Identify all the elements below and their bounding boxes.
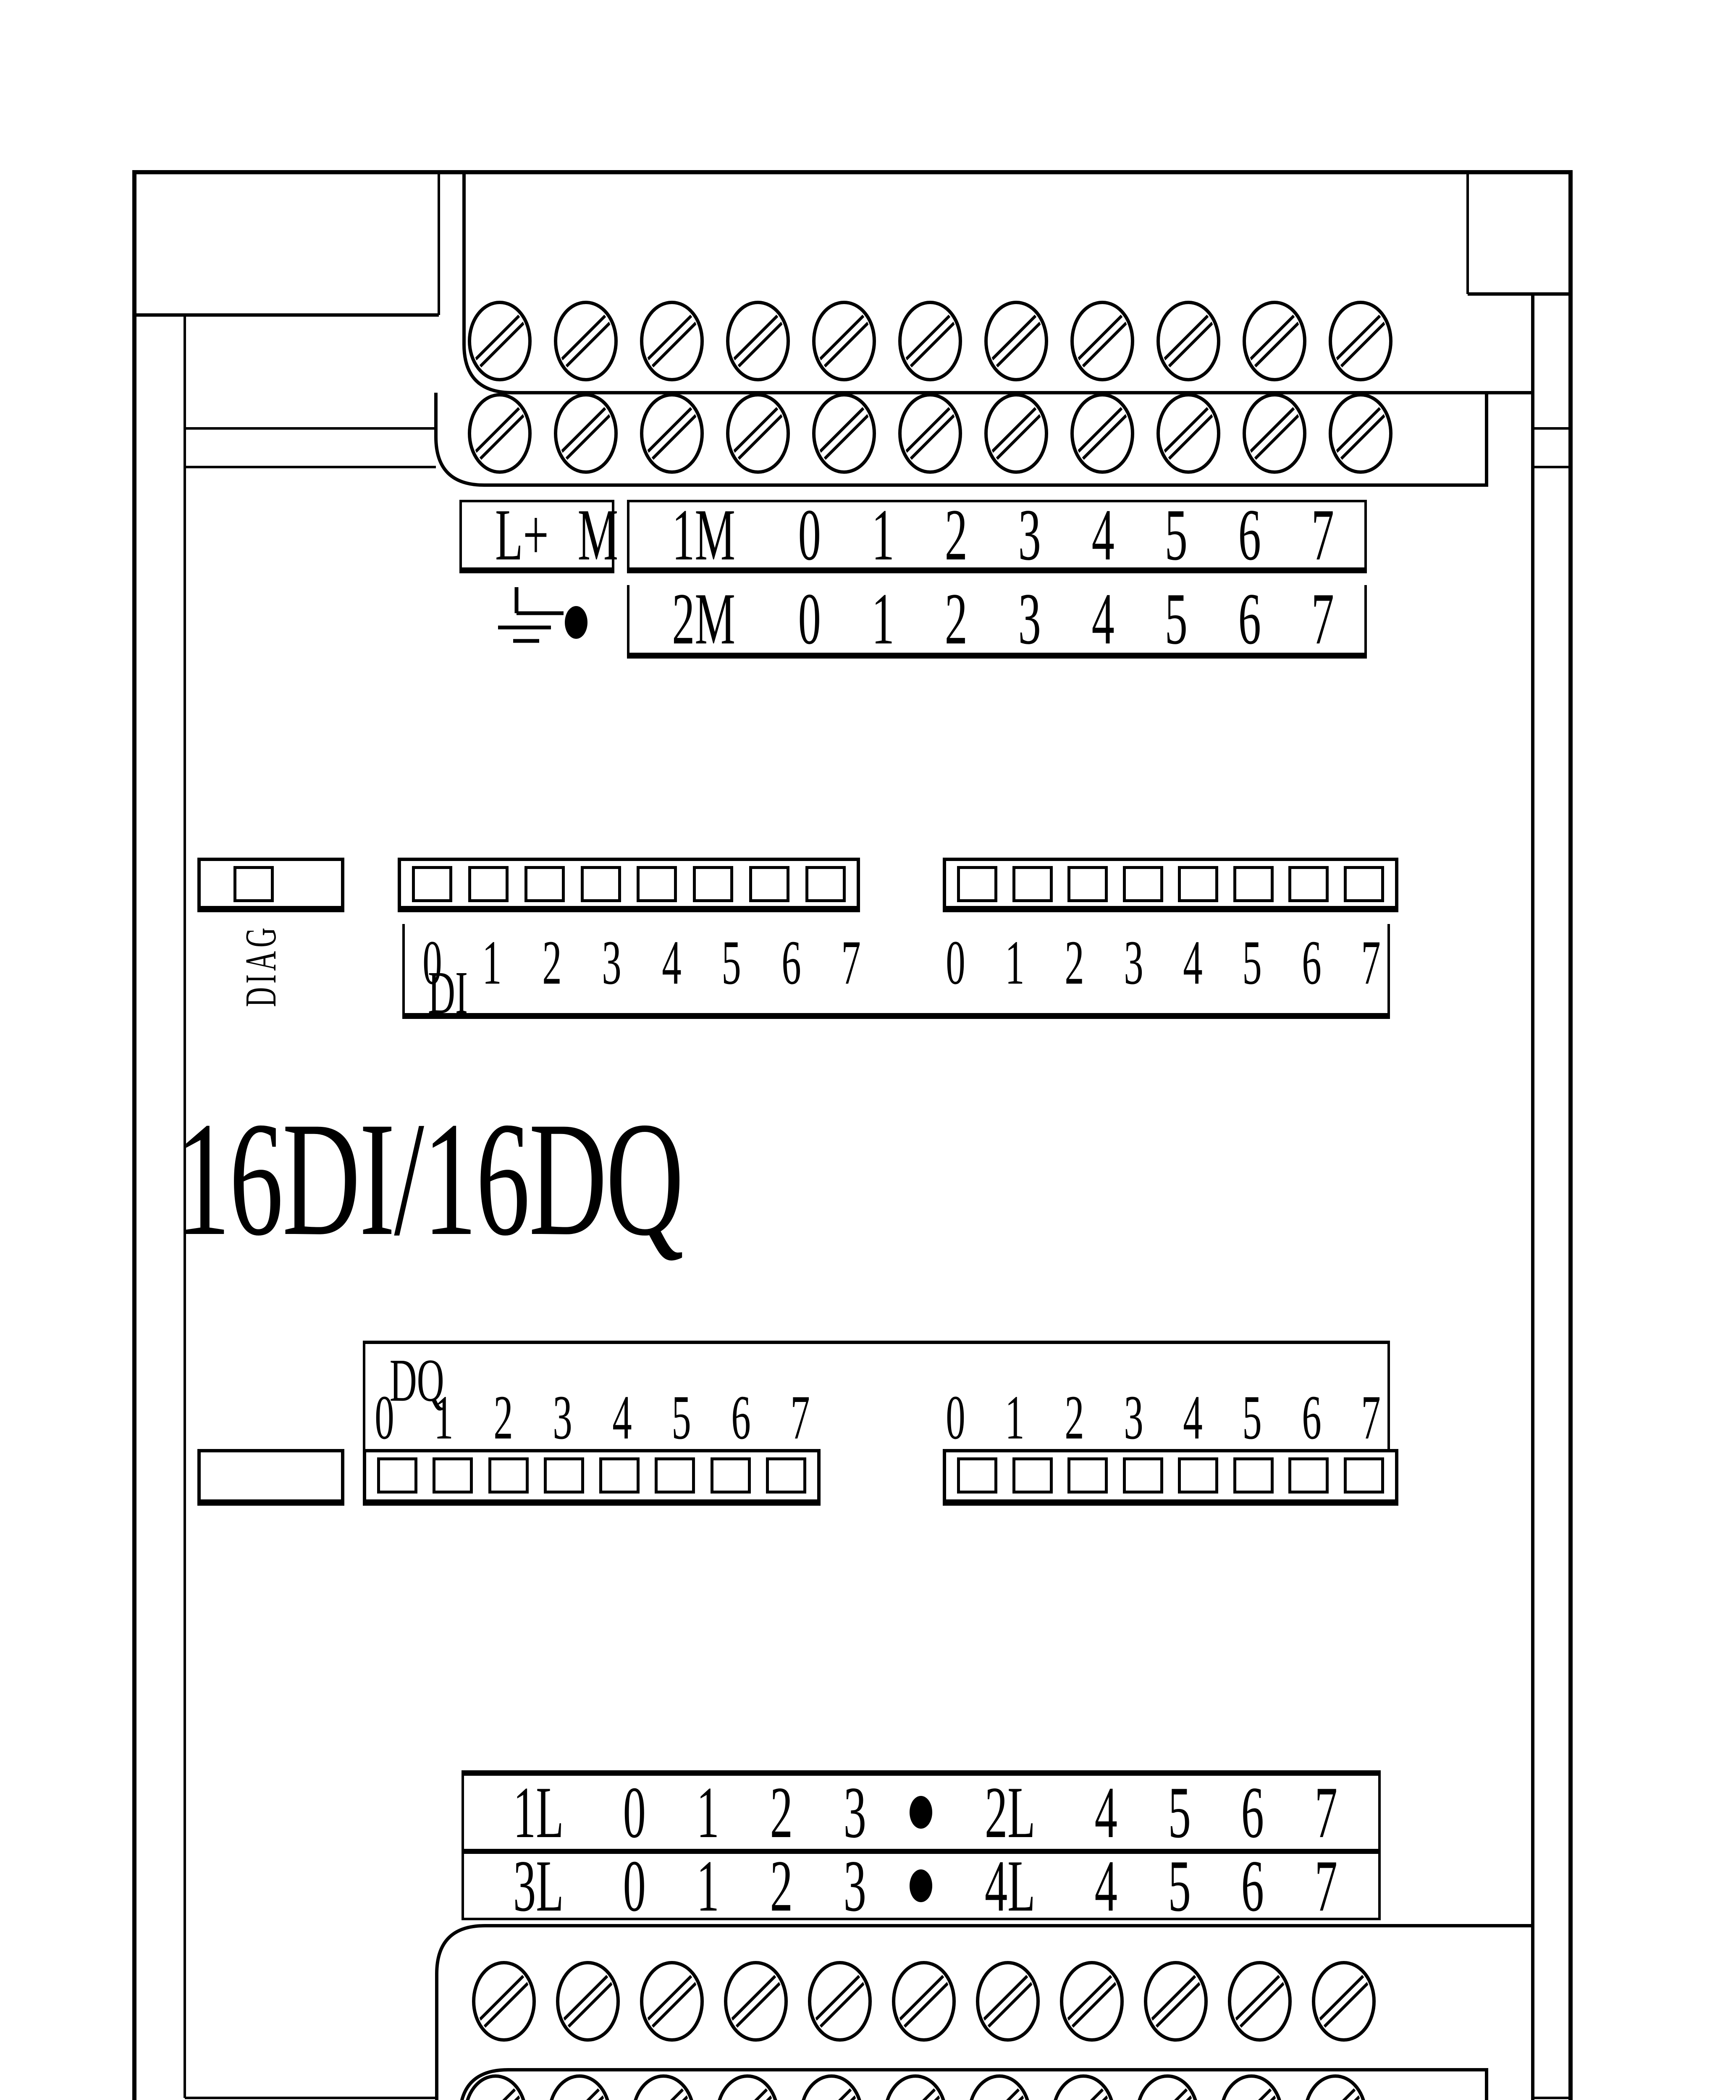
channel-led: [711, 1457, 751, 1494]
terminal-screw: [799, 2076, 864, 2100]
di-section-label: DI: [416, 963, 480, 1024]
channel-led: [1288, 866, 1329, 902]
channel-led: [1233, 1457, 1274, 1494]
power-supply-label-box: L+M: [459, 500, 614, 573]
terminal-screw: [883, 2076, 948, 2100]
terminal-screw: [1059, 1963, 1125, 2040]
terminal-screw: [1328, 395, 1393, 472]
channel-led: [766, 1457, 806, 1494]
channel-led: [524, 866, 565, 902]
channel-led: [1233, 866, 1274, 902]
terminal-screw: [1143, 1963, 1209, 2040]
di-channel-numbers-group2: 01234567: [940, 929, 1387, 996]
terminal-label: 7: [1361, 931, 1381, 994]
channel-led: [1123, 866, 1163, 902]
di-led-strip-1: [398, 858, 860, 912]
terminal-label: 0: [798, 498, 821, 572]
terminal-screw: [1219, 2076, 1284, 2100]
terminal-junction-dot: [910, 1869, 932, 1902]
terminal-label: 0: [375, 1386, 394, 1449]
diag-led: [233, 866, 274, 902]
terminal-screw: [1311, 1963, 1377, 2040]
terminal-screw: [1227, 1963, 1293, 2040]
terminal-label: 4: [1094, 1849, 1117, 1923]
terminal-label: 1: [1005, 1386, 1025, 1449]
terminal-label: 1: [696, 1776, 719, 1849]
terminal-screw: [897, 302, 963, 380]
terminal-screw: [715, 2076, 780, 2100]
terminal-screw: [1070, 395, 1135, 472]
terminal-label: 5: [1168, 1776, 1191, 1849]
terminal-label: 2L: [985, 1776, 1036, 1849]
terminal-label: 3L: [513, 1849, 564, 1923]
terminal-label: 7: [1315, 1776, 1337, 1849]
channel-led: [1012, 866, 1053, 902]
channel-led: [599, 1457, 640, 1494]
output-group-12l-label-box: 1L01232L4567: [462, 1770, 1381, 1849]
terminal-label: 1: [1005, 931, 1025, 994]
terminal-label: 5: [1165, 498, 1188, 572]
terminal-label: 6: [1241, 1776, 1264, 1849]
terminal-screw: [811, 302, 877, 380]
diag-led-box: [197, 858, 344, 912]
terminal-screw: [1135, 2076, 1200, 2100]
earth-ground-icon: [498, 587, 564, 641]
terminal-screw: [811, 395, 877, 472]
terminal-label: 5: [721, 931, 741, 994]
terminal-label: 0: [623, 1776, 645, 1849]
channel-led: [637, 866, 677, 902]
channel-led: [412, 866, 452, 902]
input-group-2m-label-box: 2M01234567: [627, 585, 1367, 659]
terminal-label: 6: [781, 931, 801, 994]
terminal-label: 1: [696, 1849, 719, 1923]
terminal-label: M: [577, 498, 618, 572]
terminal-screw: [897, 395, 963, 472]
terminal-label: 7: [1311, 582, 1334, 656]
terminal-label: 6: [1241, 1849, 1264, 1923]
channel-led: [1178, 866, 1218, 902]
terminal-screw: [1242, 395, 1307, 472]
terminal-label: 6: [1302, 1386, 1322, 1449]
terminal-screw: [1303, 2076, 1368, 2100]
channel-led: [1067, 866, 1108, 902]
di-led-strip-2: [943, 858, 1398, 912]
terminal-label: 5: [1168, 1849, 1191, 1923]
dq-spare-box: [197, 1449, 344, 1506]
channel-led: [1123, 1457, 1163, 1494]
channel-led: [1288, 1457, 1329, 1494]
terminal-label: 7: [1311, 498, 1334, 572]
terminal-label: 6: [731, 1386, 751, 1449]
terminal-label: 2: [770, 1776, 792, 1849]
terminal-label: 2: [1065, 931, 1084, 994]
terminal-label: 3: [843, 1776, 866, 1849]
terminal-label: 0: [946, 931, 965, 994]
terminal-screw: [1328, 302, 1393, 380]
channel-led: [655, 1457, 695, 1494]
terminal-screw: [725, 395, 791, 472]
dq-channel-numbers-group1: 01234567: [369, 1384, 816, 1451]
terminal-label: 2: [1065, 1386, 1084, 1449]
terminal-screw: [555, 1963, 621, 2040]
terminal-label: 2: [770, 1849, 792, 1923]
terminal-screw: [639, 395, 705, 472]
channel-led: [957, 866, 997, 902]
channel-led: [693, 866, 733, 902]
channel-led: [749, 866, 789, 902]
terminal-label: 3: [843, 1849, 866, 1923]
terminal-screw: [631, 2076, 696, 2100]
terminal-label: 5: [1243, 1386, 1262, 1449]
terminal-screw: [983, 302, 1049, 380]
terminal-label: 2: [945, 582, 968, 656]
channel-led: [1344, 1457, 1384, 1494]
di-channel-numbers-group1: 01234567: [417, 929, 867, 996]
terminal-screw: [807, 1963, 873, 2040]
terminal-label: 1: [871, 582, 894, 656]
channel-led: [805, 866, 846, 902]
terminal-label: 3: [1018, 582, 1041, 656]
terminal-screw: [1156, 395, 1221, 472]
channel-led: [377, 1457, 417, 1494]
terminal-label: 0: [798, 582, 821, 656]
terminal-screw: [725, 302, 791, 380]
module-type-title: 16DI/16DQ: [176, 1104, 683, 1255]
terminal-screw: [467, 395, 532, 472]
terminal-label: 0: [946, 1386, 965, 1449]
terminal-label: 4: [1094, 1776, 1117, 1849]
terminal-label: 3: [1124, 931, 1143, 994]
channel-led: [1178, 1457, 1218, 1494]
terminal-screw: [547, 2076, 612, 2100]
terminal-screw: [553, 302, 619, 380]
dq-led-strip-1: [363, 1449, 821, 1506]
terminal-screw: [983, 395, 1049, 472]
terminal-screw: [723, 1963, 789, 2040]
terminal-label: 4: [612, 1386, 632, 1449]
wiring-diagram-page: L+M 1M01234567 2M01234567 DIAG 01234567 …: [0, 0, 1736, 2100]
channel-led: [1067, 1457, 1108, 1494]
terminal-label: 3: [602, 931, 622, 994]
channel-led: [433, 1457, 473, 1494]
terminal-label: 1L: [513, 1776, 564, 1849]
terminal-label: 3: [553, 1386, 573, 1449]
terminal-screw: [1156, 302, 1221, 380]
terminal-label: 4: [1091, 498, 1114, 572]
terminal-label: 7: [1315, 1849, 1337, 1923]
terminal-label: 4: [1183, 1386, 1203, 1449]
channel-led: [468, 866, 509, 902]
terminal-screw: [553, 395, 619, 472]
terminal-label: 2: [493, 1386, 513, 1449]
terminal-screw: [967, 2076, 1032, 2100]
channel-led: [544, 1457, 584, 1494]
junction-dot-icon: [565, 606, 587, 639]
terminal-label: 4L: [985, 1849, 1036, 1923]
output-group-34l-label-box: 3L01234L4567: [462, 1849, 1381, 1920]
terminal-label: 7: [1361, 1386, 1381, 1449]
channel-led: [488, 1457, 529, 1494]
terminal-label: 5: [1165, 582, 1188, 656]
terminal-screw: [1242, 302, 1307, 380]
terminal-label: 3: [1124, 1386, 1143, 1449]
terminal-label: 7: [790, 1386, 810, 1449]
terminal-label: 4: [662, 931, 682, 994]
terminal-label: 2: [945, 498, 968, 572]
terminal-screw: [975, 1963, 1041, 2040]
terminal-label: 7: [841, 931, 861, 994]
terminal-label: 4: [1091, 582, 1114, 656]
terminal-label: 6: [1302, 931, 1322, 994]
terminal-label: 3: [1018, 498, 1041, 572]
terminal-label: 6: [1238, 498, 1261, 572]
terminal-screw: [1051, 2076, 1116, 2100]
diag-label: DIAG: [239, 942, 283, 1007]
dq-channel-numbers-group2: 01234567: [940, 1384, 1387, 1451]
input-group-1m-label-box: 1M01234567: [627, 500, 1367, 573]
terminal-label: 4: [1183, 931, 1203, 994]
terminal-label: 1M: [672, 498, 735, 572]
terminal-label: 5: [1243, 931, 1262, 994]
channel-led: [1012, 1457, 1053, 1494]
terminal-label: 0: [623, 1849, 645, 1923]
terminal-screw: [1070, 302, 1135, 380]
channel-led: [957, 1457, 997, 1494]
channel-led: [581, 866, 621, 902]
terminal-label: 5: [671, 1386, 691, 1449]
terminal-label: 1: [434, 1386, 454, 1449]
terminal-label: L+: [495, 498, 548, 572]
terminal-label: 1: [483, 931, 502, 994]
terminal-screw: [471, 1963, 537, 2040]
terminal-screw: [639, 1963, 705, 2040]
channel-led: [1344, 866, 1384, 902]
terminal-label: 6: [1238, 582, 1261, 656]
terminal-screw: [891, 1963, 957, 2040]
terminal-screw: [467, 302, 532, 380]
dq-led-strip-2: [943, 1449, 1398, 1506]
terminal-label: 1: [871, 498, 894, 572]
terminal-junction-dot: [910, 1796, 932, 1829]
terminal-screw: [639, 302, 705, 380]
terminal-label: 2: [542, 931, 562, 994]
terminal-label: 2M: [672, 582, 735, 656]
